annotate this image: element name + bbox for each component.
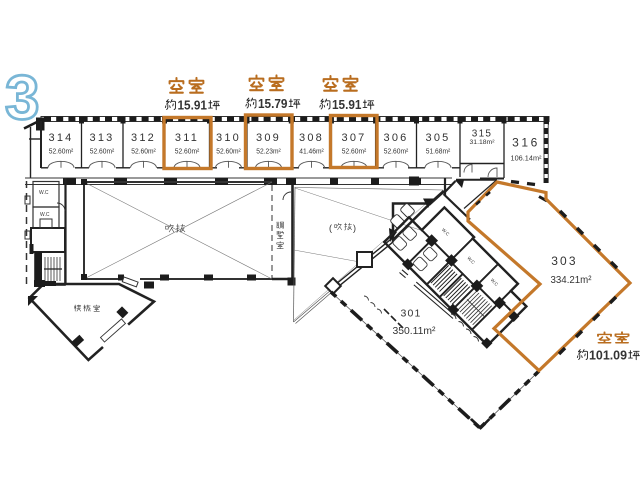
svg-text:312: 312 [131,132,156,144]
svg-text:): ) [353,223,356,233]
svg-text:W.C: W.C [39,190,49,196]
svg-text:W.C: W.C [490,277,500,287]
svg-text:15.91: 15.91 [178,98,208,113]
svg-text:307: 307 [342,132,367,144]
svg-text:106.14m²: 106.14m² [511,156,543,163]
svg-text:52.60m²: 52.60m² [342,149,367,156]
svg-text:310: 310 [216,132,241,144]
svg-text:52.60m²: 52.60m² [131,149,156,156]
svg-text:W.C: W.C [466,255,476,265]
svg-text:15.79: 15.79 [258,96,288,111]
svg-text:(: ( [329,223,332,233]
svg-text:15.91: 15.91 [332,97,362,112]
svg-text:52.60m²: 52.60m² [175,149,200,156]
svg-text:314: 314 [49,132,74,144]
svg-text:301: 301 [400,308,421,320]
svg-text:31.18m²: 31.18m² [470,139,496,146]
svg-text:51.68m²: 51.68m² [426,149,451,156]
svg-text:311: 311 [175,132,199,144]
svg-text:308: 308 [299,132,324,144]
svg-text:334.21m²: 334.21m² [551,274,592,286]
svg-text:W.C: W.C [40,212,50,218]
svg-text:306: 306 [384,132,409,144]
svg-text:316: 316 [512,136,540,150]
svg-text:W.C: W.C [441,227,451,237]
svg-text:313: 313 [90,132,115,144]
svg-text:52.23m²: 52.23m² [256,149,281,156]
svg-text:315: 315 [472,129,493,140]
svg-text:52.60m²: 52.60m² [384,149,409,156]
svg-text:52.60m²: 52.60m² [49,149,74,156]
svg-text:101.09: 101.09 [589,348,627,363]
svg-text:303: 303 [551,254,578,268]
svg-text:41.46m²: 41.46m² [299,149,324,156]
svg-text:309: 309 [256,132,281,144]
svg-text:350.11m²: 350.11m² [393,325,436,337]
svg-text:52.60m²: 52.60m² [90,149,115,156]
svg-text:305: 305 [426,132,451,144]
svg-text:52.60m²: 52.60m² [216,149,241,156]
